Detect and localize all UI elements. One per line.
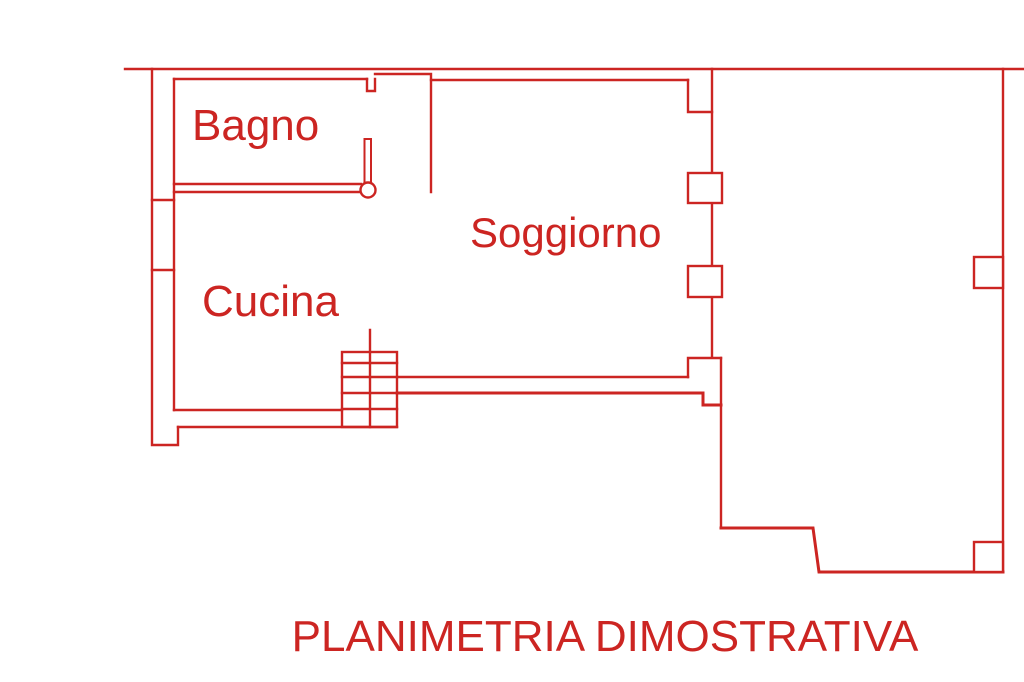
wall-bottom-right-boundary [721,528,1003,572]
door-hinge-circle [361,183,376,198]
wall-junction-top [688,358,721,377]
corridor-wall-bottom [397,393,721,405]
stairs [342,330,397,427]
window-soggiorno-lower [688,266,722,297]
window-right-wall [974,257,1003,288]
floor-plan-canvas: Bagno Soggiorno Cucina PLANIMETRIA DIMOS… [0,0,1024,682]
room-label-cucina: Cucina [202,277,339,326]
wall-soggiorno-step [688,80,712,112]
door-leaf [365,139,372,184]
window-soggiorno-upper [688,173,722,203]
windows [688,173,1003,572]
room-label-bagno: Bagno [192,101,319,150]
floor-plan-drawing: Bagno Soggiorno Cucina PLANIMETRIA DIMOS… [0,0,1024,682]
corridor-walls [397,377,721,405]
corner-block-bottom-right [974,542,1003,572]
soggiorno-walls [431,69,721,528]
plan-title: PLANIMETRIA DIMOSTRATIVA [292,612,919,661]
cucina-walls [174,410,397,427]
wall-entry-top [375,74,688,80]
room-label-soggiorno: Soggiorno [470,209,661,256]
wall-top-notch [367,79,375,91]
